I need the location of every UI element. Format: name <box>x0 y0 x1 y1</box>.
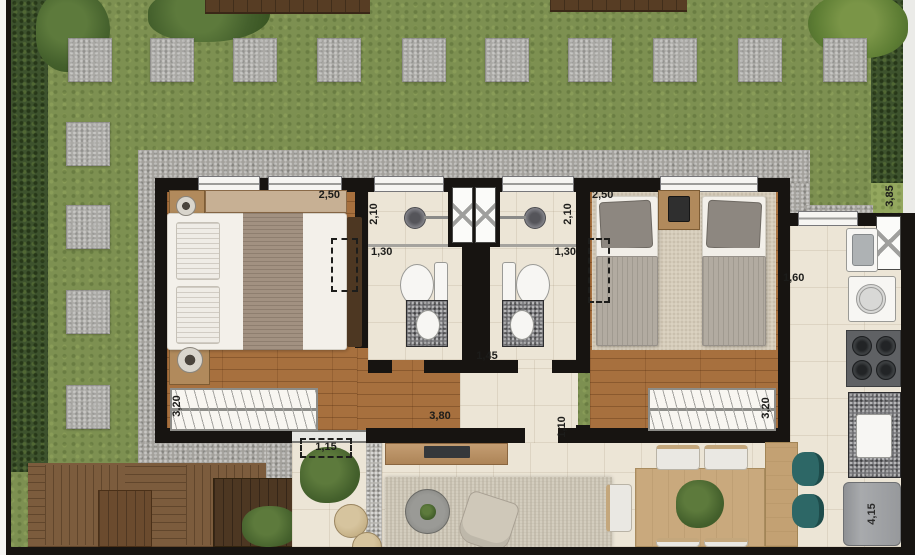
window-kitchen <box>798 211 858 226</box>
bed-pillow <box>706 200 762 251</box>
wall-bath-bottom <box>552 360 578 373</box>
bed-pillow <box>176 286 220 344</box>
dimension-label-bath1-shower: 2,10 <box>368 194 380 234</box>
bed-pillow <box>176 222 220 280</box>
dimension-label-bedroom2-width: 2,50 <box>592 189 632 201</box>
dimension-label-terrace-width: 1,15 <box>306 441 346 453</box>
kitchen-sink <box>856 414 892 458</box>
dimension-label-hall-depth: 1,10 <box>556 407 568 447</box>
counter-stool <box>792 452 824 486</box>
dimension-label-kitchen-length: 4,15 <box>866 494 878 534</box>
stepping-stone <box>66 122 110 166</box>
counter-stool <box>792 494 824 528</box>
wall-left <box>155 178 167 443</box>
wardrobe-bedroom1 <box>170 388 318 431</box>
dimension-label-garden-side: 3,85 <box>884 176 896 216</box>
dimension-label-bedroom1-width: 2,50 <box>300 189 340 201</box>
bath2-sink <box>510 310 534 340</box>
wardrobe-bedroom2 <box>648 388 776 431</box>
stepping-stone <box>150 38 194 82</box>
stepping-stone <box>66 385 110 429</box>
burner-icon <box>876 360 896 380</box>
stepping-stone <box>402 38 446 82</box>
wall-terrace-jamb <box>366 428 382 443</box>
stepping-stone <box>68 38 112 82</box>
wall-right <box>901 213 915 555</box>
page-border-bottom <box>6 547 915 555</box>
washer-drum-icon <box>856 284 886 314</box>
table-lamp-icon <box>177 347 203 373</box>
table-lamp-icon <box>176 196 196 216</box>
stepping-stone <box>653 38 697 82</box>
window-bath2 <box>502 176 574 192</box>
burner-icon <box>852 336 872 356</box>
gravel-path-left <box>138 150 155 463</box>
dimension-label-living-width: 3,80 <box>420 410 460 422</box>
future-ac-outline <box>331 238 358 292</box>
window-bath1 <box>374 176 444 192</box>
stepping-stone <box>823 38 867 82</box>
dining-chair <box>704 445 748 470</box>
bed-blanket <box>702 256 766 346</box>
hedge-left <box>11 0 48 472</box>
wall-bottom-2 <box>382 428 525 443</box>
stepping-stone <box>568 38 612 82</box>
wall-bath-bottom <box>368 360 392 373</box>
stepping-stone <box>66 290 110 334</box>
shower-head-icon <box>404 207 426 229</box>
shower-arm <box>500 216 526 219</box>
future-ac-outline <box>588 238 610 303</box>
stepping-stone <box>485 38 529 82</box>
page-border-left <box>6 0 11 555</box>
bed-runner <box>243 213 303 350</box>
tv-icon <box>424 446 470 458</box>
wood-planter <box>205 0 370 14</box>
stepping-stone <box>66 205 110 249</box>
shower-head-icon <box>524 207 546 229</box>
stepping-stone <box>738 38 782 82</box>
dimension-label-hall-width: 1,45 <box>467 350 507 362</box>
vent-shaft-icon <box>452 187 473 243</box>
dining-chair <box>704 538 748 547</box>
dimension-label-bath1-width: 1,30 <box>371 246 411 258</box>
vent-shaft-icon <box>876 216 901 270</box>
stepping-stone <box>317 38 361 82</box>
laundry-tub-basin <box>852 234 874 266</box>
dimension-label-bath2-shower: 2,10 <box>562 194 574 234</box>
vent-shaft-icon <box>475 187 496 243</box>
dimension-label-bedroom2-length: 3,20 <box>760 388 772 428</box>
deck-bench <box>98 490 152 547</box>
burner-icon <box>852 360 872 380</box>
stepping-stone <box>233 38 277 82</box>
dining-chair <box>656 445 700 470</box>
floor-plan-scene: 2,50 3,20 2,10 1,30 2,10 1,30 2,50 3,20 … <box>0 0 915 555</box>
dimension-label-bedroom1-length: 3,20 <box>171 386 183 426</box>
dining-chair <box>606 484 632 532</box>
bath1-sink <box>416 310 440 340</box>
shower-arm <box>424 216 448 219</box>
table-lamp-icon <box>668 196 690 222</box>
burner-icon <box>876 336 896 356</box>
dimension-label-bath2-width: 1,30 <box>536 246 576 258</box>
dining-chair <box>656 538 700 547</box>
dimension-label-kitchen-width: 1,60 <box>783 272 823 284</box>
wood-planter <box>550 0 687 12</box>
